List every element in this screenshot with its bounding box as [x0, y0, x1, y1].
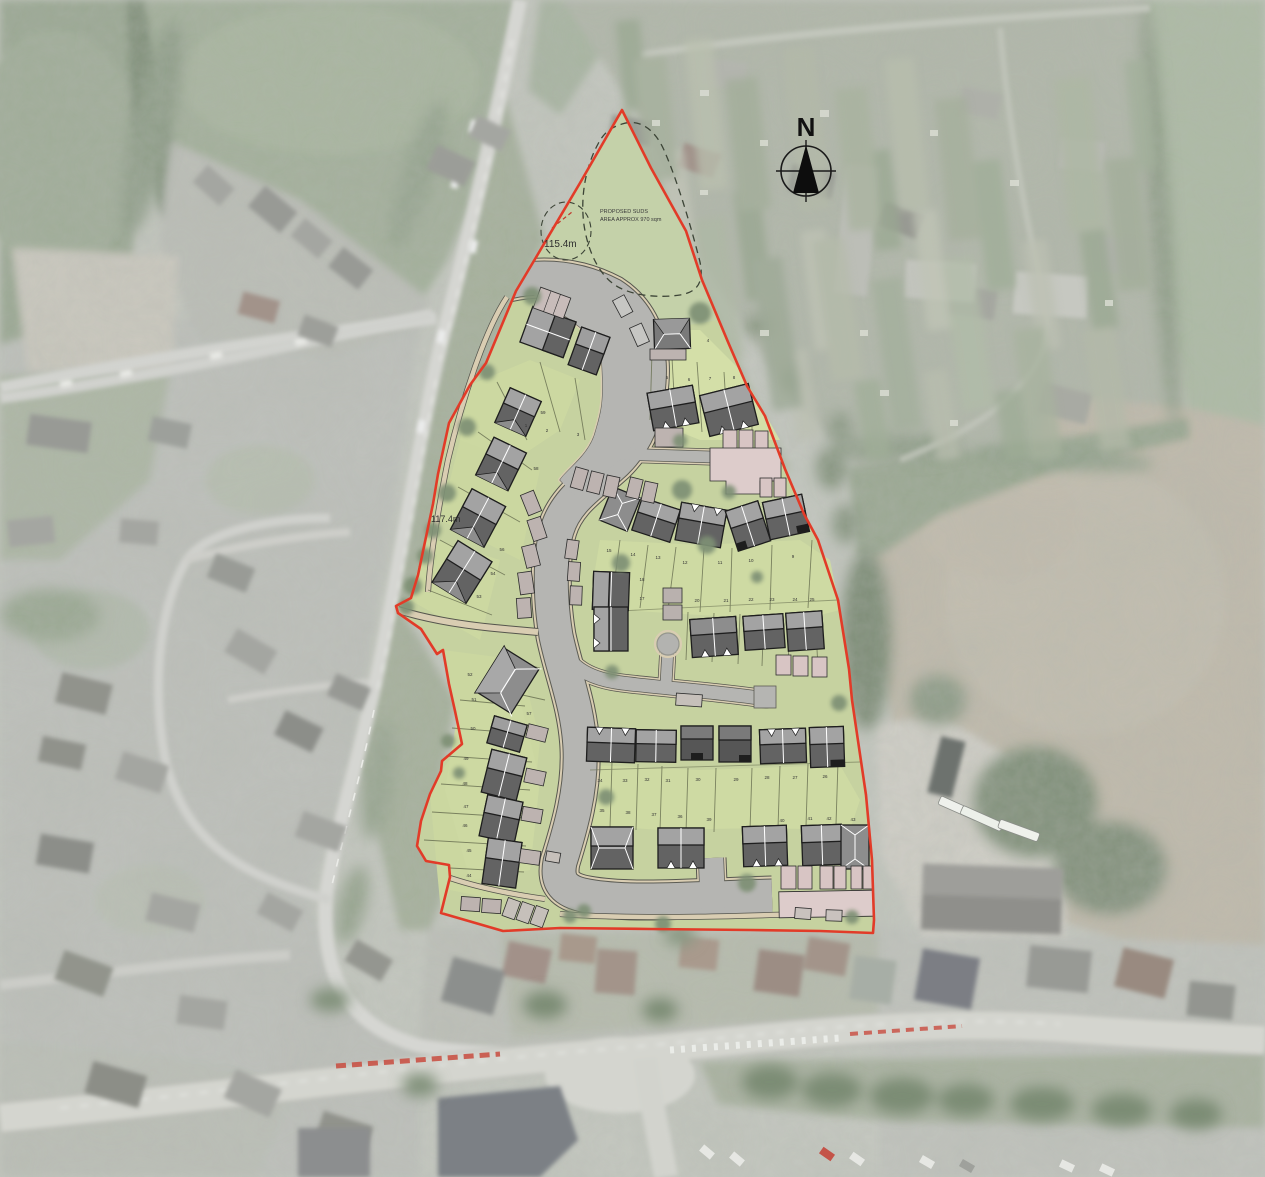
- svg-text:46: 46: [462, 823, 468, 828]
- svg-text:52: 52: [467, 672, 473, 677]
- svg-text:117.4m: 117.4m: [431, 514, 460, 524]
- svg-text:36: 36: [677, 814, 683, 819]
- svg-text:115.4m: 115.4m: [544, 239, 577, 250]
- svg-text:54: 54: [490, 571, 496, 576]
- svg-text:48: 48: [462, 781, 468, 786]
- svg-text:42: 42: [826, 816, 832, 821]
- svg-text:29: 29: [733, 777, 739, 782]
- svg-text:45: 45: [466, 848, 472, 853]
- svg-text:30: 30: [695, 777, 701, 782]
- svg-text:53: 53: [476, 594, 482, 599]
- svg-text:23: 23: [769, 597, 775, 602]
- svg-text:PROPOSED SUDS: PROPOSED SUDS: [600, 209, 648, 215]
- svg-text:25: 25: [809, 597, 815, 602]
- svg-text:49: 49: [463, 756, 469, 761]
- svg-text:51: 51: [471, 697, 477, 702]
- svg-text:50: 50: [470, 726, 476, 731]
- svg-text:40: 40: [779, 818, 785, 823]
- svg-text:28: 28: [764, 775, 770, 780]
- svg-text:12: 12: [682, 560, 688, 565]
- svg-text:11: 11: [718, 560, 723, 565]
- svg-text:58: 58: [533, 466, 539, 471]
- svg-text:41: 41: [807, 816, 813, 821]
- svg-text:31: 31: [665, 778, 671, 783]
- svg-text:15: 15: [606, 548, 612, 553]
- svg-text:56: 56: [499, 547, 505, 552]
- svg-text:44: 44: [466, 873, 472, 878]
- svg-text:57: 57: [526, 711, 532, 716]
- svg-text:32: 32: [644, 777, 650, 782]
- svg-text:59: 59: [540, 410, 546, 415]
- svg-text:33: 33: [622, 778, 628, 783]
- svg-text:17: 17: [639, 596, 645, 601]
- svg-text:26: 26: [822, 774, 828, 779]
- svg-text:22: 22: [748, 597, 754, 602]
- svg-text:N: N: [797, 112, 816, 142]
- svg-text:34: 34: [597, 778, 603, 783]
- svg-text:35: 35: [599, 808, 605, 813]
- svg-text:43: 43: [850, 817, 856, 822]
- svg-text:37: 37: [651, 812, 657, 817]
- svg-text:39: 39: [706, 817, 712, 822]
- svg-text:10: 10: [748, 558, 754, 563]
- svg-text:AREA APPROX 970 sqm: AREA APPROX 970 sqm: [600, 217, 662, 223]
- svg-text:27: 27: [792, 775, 798, 780]
- svg-text:13: 13: [655, 555, 661, 560]
- svg-text:24: 24: [792, 597, 798, 602]
- svg-text:20: 20: [694, 598, 700, 603]
- svg-text:14: 14: [630, 552, 636, 557]
- svg-text:18: 18: [639, 577, 645, 582]
- svg-text:38: 38: [625, 810, 631, 815]
- svg-text:47: 47: [463, 804, 469, 809]
- svg-text:21: 21: [723, 598, 729, 603]
